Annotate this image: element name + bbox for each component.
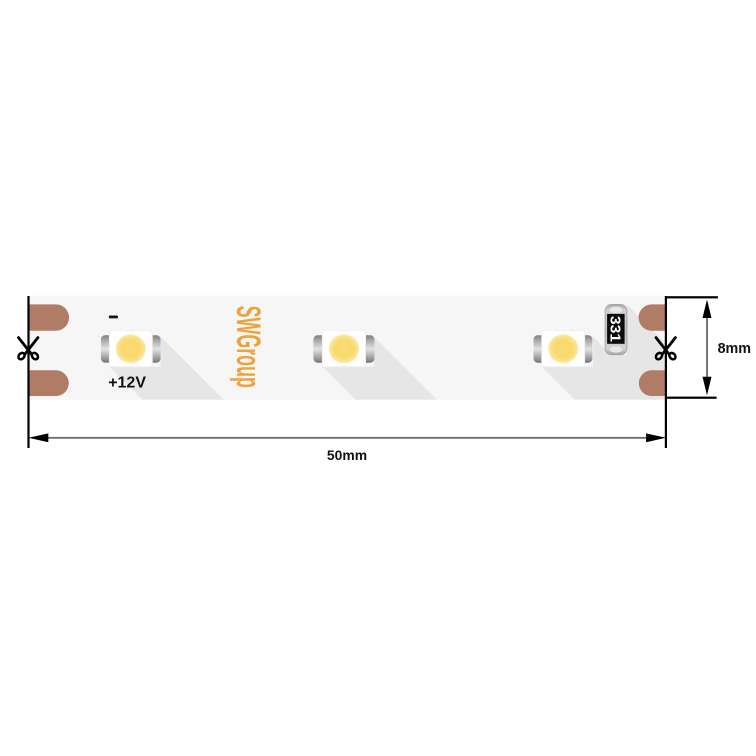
svg-text:SWGroup: SWGroup	[229, 306, 267, 388]
svg-text:50mm: 50mm	[327, 447, 367, 463]
svg-text:+12V: +12V	[108, 375, 146, 392]
svg-text:331: 331	[607, 316, 624, 343]
svg-text:8mm: 8mm	[718, 341, 751, 357]
